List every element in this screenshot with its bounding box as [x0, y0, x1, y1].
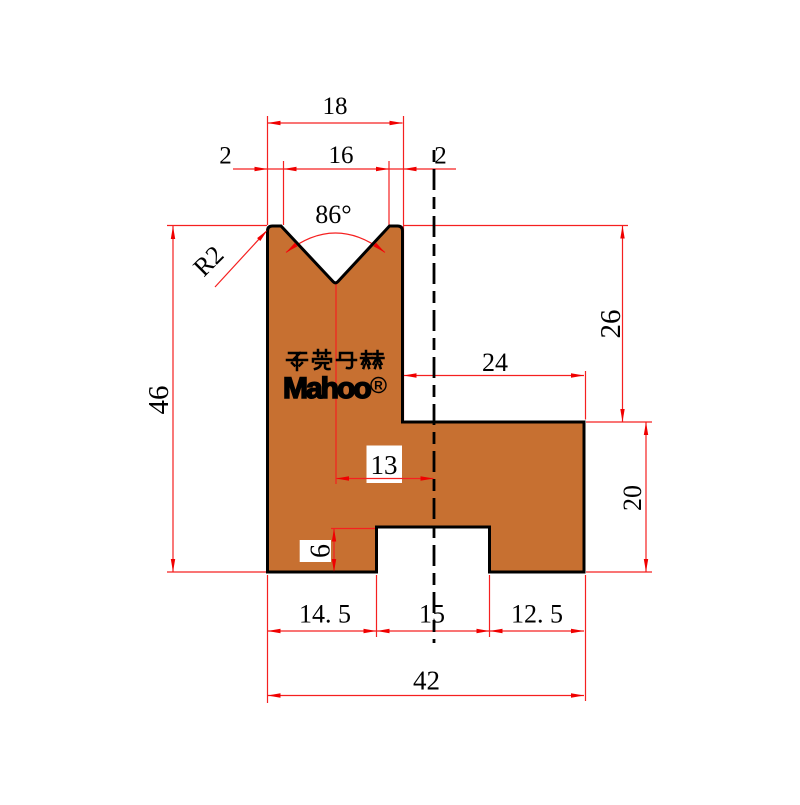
svg-text:2: 2	[434, 143, 447, 170]
svg-text:86°: 86°	[315, 200, 351, 229]
svg-text:13: 13	[371, 450, 398, 480]
svg-text:14. 5: 14. 5	[299, 600, 351, 629]
svg-text:26: 26	[595, 310, 627, 339]
svg-text:46: 46	[143, 386, 175, 415]
svg-text:16: 16	[329, 142, 354, 169]
svg-text:15: 15	[419, 600, 445, 629]
svg-text:Mahoo: Mahoo	[283, 372, 371, 405]
svg-text:18: 18	[323, 93, 348, 120]
svg-text:42: 42	[413, 666, 440, 696]
svg-text:24: 24	[482, 348, 508, 377]
svg-text:12. 5: 12. 5	[511, 600, 563, 629]
svg-text:20: 20	[618, 485, 647, 511]
svg-text:6: 6	[306, 544, 337, 558]
svg-text:2: 2	[219, 143, 232, 170]
svg-text:R: R	[374, 379, 383, 393]
